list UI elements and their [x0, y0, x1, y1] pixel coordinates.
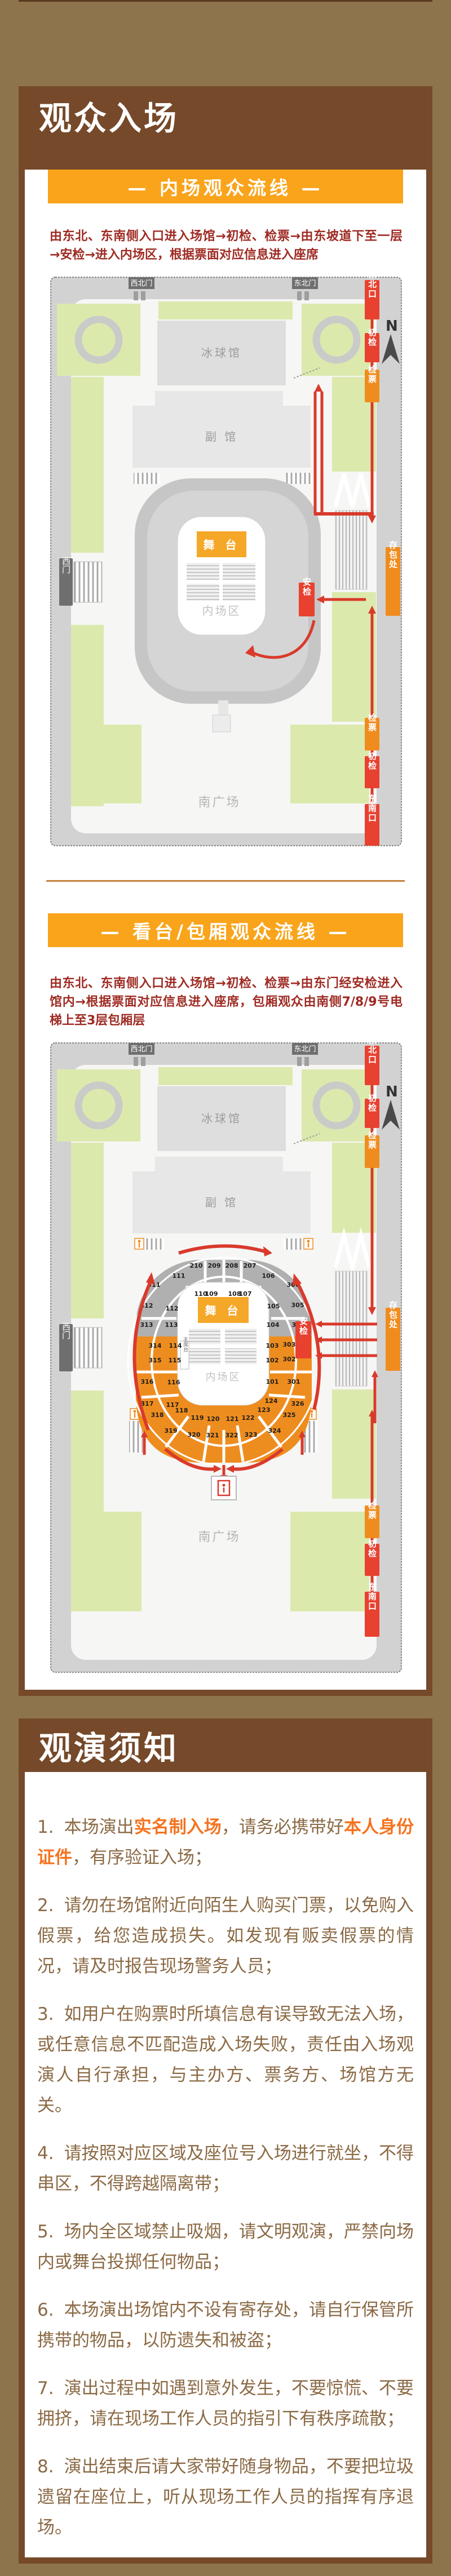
- notice-item-3: 3.如用户在购票时所填信息有误导致无法入场，或任意信息不匹配造成入场失败，责任由…: [37, 1999, 414, 2121]
- first-check-badge: 初检: [367, 751, 377, 771]
- gate-barrier: [134, 1057, 138, 1066]
- seat-section-label: 103: [266, 1342, 279, 1349]
- section-entrance: 观众入场 — 内场观众流线 — 由东北、东南侧入口进入场馆→初检、检票→由东坡道…: [19, 86, 432, 1696]
- west-gate-label: 西门: [61, 1322, 71, 1340]
- north-compass-label: N: [386, 318, 398, 335]
- west-stairs: [74, 1327, 102, 1368]
- seat-section-label: 324: [268, 1427, 281, 1434]
- seat-section-label: 123: [258, 1406, 271, 1414]
- seat-section-label: 303: [283, 1341, 296, 1348]
- notice-number: 1.: [37, 1817, 54, 1837]
- gate-ne-label: 东北门: [294, 1045, 316, 1054]
- notice-item-1: 1.本场演出实名制入场，请务必携带好本人身份证件，有序验证入场；: [37, 1812, 414, 1873]
- west-gate-label: 西门: [61, 557, 71, 574]
- gate-barrier: [304, 1057, 309, 1066]
- gate-barrier: [141, 291, 145, 300]
- seat-section-label: 302: [283, 1356, 296, 1363]
- infield-flow-desc: 由东北、东南侧入口进入场馆→初检、检票→由东坡道下至一层→安检→进入内场区，根据…: [25, 227, 426, 264]
- seat-section-label: 107: [239, 1290, 252, 1298]
- notice-item-4: 4.请按照对应区域及座位号入场进行就坐，不得串区，不得跨越隔离带；: [37, 2138, 414, 2199]
- notice-item-6: 6.本场演出场馆内不设有寄存处，请自行保管所携带的物品，以防遗失和被盗；: [37, 2295, 414, 2356]
- notice-text: ，有序验证入场；: [72, 1847, 212, 1868]
- ice-hall-label: 冰球馆: [201, 1112, 242, 1125]
- seat-section-label: 122: [242, 1414, 255, 1422]
- seat-section-label: 208: [225, 1262, 238, 1269]
- seat-section-label: 313: [140, 1321, 153, 1329]
- notice-text: 场内全区域禁止吸烟，请文明观演，严禁向场内或舞台投掷任何物品；: [37, 2222, 414, 2272]
- ticket-check-badge: 检票: [367, 365, 377, 384]
- seat-section-label: 319: [165, 1427, 178, 1434]
- notice-card: 1.本场演出实名制入场，请务必携带好本人身份证件，有序验证入场； 2.请勿在场馆…: [25, 1772, 426, 2557]
- seat-section-label: 113: [165, 1321, 178, 1329]
- page: 观众入场 — 内场观众流线 — 由东北、东南侧入口进入场馆→初检、检票→由东坡道…: [0, 0, 451, 2576]
- notice-text: 请勿在场馆附近向陌生人购买门票，以免购入假票，给您造成损失。如发现有贩卖假票的情…: [37, 1895, 414, 1977]
- notice-text: 请按照对应区域及座位号入场进行就坐，不得串区，不得跨越隔离带；: [37, 2143, 414, 2194]
- notice-number: 2.: [37, 1895, 54, 1916]
- seat-section-label: 111: [173, 1272, 185, 1280]
- seat-section-label: 316: [141, 1378, 154, 1385]
- ticket-check-badge: 检票: [367, 1500, 377, 1520]
- seat-section-label: 323: [245, 1431, 258, 1438]
- notice-text: 演出过程中如遇到意外发生，不要惊慌、不要拥挤，请在现场工作人员的指引下有秩序疏散…: [37, 2378, 414, 2429]
- seat-section-label: 119: [191, 1414, 204, 1422]
- south-corridor: [218, 700, 228, 716]
- entrance-card: — 内场观众流线 — 由东北、东南侧入口进入场馆→初检、检票→由东坡道下至一层→…: [25, 170, 426, 1690]
- security-check-badge: 安检: [302, 577, 312, 597]
- banner-infield-flow: — 内场观众流线 —: [48, 170, 403, 203]
- map-stand: 冰球馆 副 馆: [50, 1042, 426, 1673]
- stairs-icon: [134, 473, 160, 484]
- ice-hall-label: 冰球馆: [201, 346, 242, 359]
- seat-section-label: 314: [149, 1342, 162, 1349]
- seat-section-label: 121: [226, 1415, 239, 1423]
- aux-hall-label: 副 馆: [205, 1196, 238, 1209]
- seat-section-label: 114: [169, 1342, 182, 1349]
- banner-stand-flow: — 看台/包厢观众流线 —: [48, 913, 403, 947]
- seat-section-label: 209: [208, 1262, 221, 1269]
- notice-highlight: 实名制入场: [134, 1817, 222, 1837]
- stage-label: 舞 台: [204, 538, 240, 552]
- ticket-check-badge: 检票: [367, 1130, 377, 1150]
- notice-title: 观演须知: [19, 1718, 432, 1772]
- notice-number: 7.: [37, 2378, 54, 2399]
- gate-nw-label: 西北门: [130, 279, 152, 288]
- notice-number: 4.: [37, 2143, 54, 2164]
- south-plaza-label: 南广场: [198, 796, 240, 810]
- gate-barrier: [304, 291, 309, 300]
- gate-barrier: [297, 291, 302, 300]
- first-check-badge: 初检: [367, 327, 377, 347]
- notice-text: 演出结束后请大家带好随身物品，不要把垃圾遗留在座位上，听从现场工作人员的指挥有序…: [37, 2457, 414, 2538]
- west-stairs: [74, 562, 102, 602]
- gate-ne-label: 东北门: [294, 279, 316, 288]
- seat-section-label: 305: [291, 1302, 304, 1309]
- stage-label: 舞 台: [205, 1304, 242, 1317]
- notice-item-2: 2.请勿在场馆附近向陌生人购买门票，以免购入假票，给您造成损失。如发现有贩卖假票…: [37, 1890, 414, 1982]
- map-infield-svg: 冰球馆 副 馆 舞 台 内场区: [50, 277, 402, 846]
- aux-hall-label: 副 馆: [205, 430, 238, 443]
- first-check-badge: 初检: [367, 1539, 377, 1558]
- seat-section-label: 101: [266, 1378, 279, 1385]
- seat-section-label: 118: [175, 1407, 188, 1414]
- seat-section-label: 318: [151, 1411, 164, 1419]
- gate-barrier: [141, 1057, 145, 1066]
- seat-section-label: 109: [205, 1290, 218, 1298]
- aux-hall-annex: [155, 1157, 283, 1171]
- notice-number: 5.: [37, 2222, 54, 2242]
- notice-text: ，请务必携带好: [222, 1817, 344, 1837]
- seat-section-label: 105: [267, 1303, 280, 1310]
- notice-text: 本场演出: [64, 1817, 134, 1837]
- aux-hall-annex: [155, 391, 283, 406]
- gate-nw-label: 西北门: [130, 1045, 152, 1054]
- notice-number: 8.: [37, 2457, 54, 2477]
- page-title: 观众入场: [19, 86, 432, 145]
- infield-label: 内场区: [206, 1371, 241, 1383]
- seat-section-label: 207: [244, 1262, 257, 1269]
- security-check-badge: 安检: [298, 1316, 308, 1336]
- seat-section-label: 210: [190, 1262, 203, 1269]
- gate-barrier: [297, 1057, 302, 1066]
- section-divider: [46, 880, 405, 882]
- notice-text: 本场演出场馆内不设有寄存处，请自行保管所携带的物品，以防遗失和被盗；: [37, 2300, 414, 2351]
- first-check-badge: 初检: [367, 1093, 377, 1113]
- notice-item-7: 7.演出过程中如遇到意外发生，不要惊慌、不要拥挤，请在现场工作人员的指引下有秩序…: [37, 2373, 414, 2434]
- seat-section-label: 124: [265, 1397, 278, 1405]
- ne-entrance-badge: 东北口: [367, 1042, 377, 1065]
- notice-number: 6.: [37, 2300, 54, 2320]
- bag-storage-badge: 存包处: [388, 540, 398, 570]
- seat-section-label: 317: [141, 1400, 154, 1407]
- seat-section-label: 102: [266, 1357, 279, 1364]
- top-divider: [19, 0, 432, 2]
- section-notice: 观演须知 1.本场演出实名制入场，请务必携带好本人身份证件，有序验证入场； 2.…: [19, 1718, 432, 2564]
- map-infield: 冰球馆 副 馆 舞 台 内场区: [50, 277, 426, 846]
- infield-label: 内场区: [202, 604, 241, 618]
- seat-section-label: 322: [225, 1432, 238, 1439]
- rostrum-label: 主席台: [182, 1336, 188, 1352]
- ticket-check-badge: 检票: [367, 713, 377, 732]
- notice-number: 3.: [37, 2004, 54, 2024]
- stairs-icon: [286, 473, 312, 484]
- south-plaza-label: 南广场: [198, 1530, 240, 1544]
- queue-lanes: [335, 1271, 367, 1386]
- map-stand-svg: 冰球馆 副 馆: [50, 1042, 402, 1673]
- seat-section-label: 326: [291, 1400, 304, 1407]
- notice-item-5: 5.场内全区域禁止吸烟，请文明观演，严禁向场内或舞台投掷任何物品；: [37, 2217, 414, 2277]
- seat-section-label: 115: [169, 1357, 182, 1364]
- seat-section-label: 106: [262, 1272, 275, 1280]
- seat-section-label: 120: [207, 1415, 220, 1423]
- seat-section-label: 116: [167, 1379, 180, 1386]
- stand-flow-desc: 由东北、东南侧入口进入场馆→初检、检票→由东门经安检进入馆内→根据票面对应信息进…: [25, 974, 426, 1030]
- south-exit: [213, 715, 231, 732]
- se-entrance-badge: 东南口: [367, 1582, 377, 1611]
- north-compass-label: N: [386, 1083, 398, 1100]
- seat-section-label: 112: [166, 1305, 179, 1312]
- seat-section-label: 320: [188, 1431, 201, 1438]
- queue-lanes: [335, 510, 367, 589]
- notice-item-8: 8.演出结束后请大家带好随身物品，不要把垃圾遗留在座位上，听从现场工作人员的指挥…: [37, 2451, 414, 2543]
- seat-section-label: 104: [267, 1321, 280, 1329]
- seat-section-label: 321: [206, 1432, 219, 1439]
- notice-text: 如用户在购票时所填信息有误导致无法入场，或任意信息不匹配造成入场失败，责任由入场…: [37, 2004, 414, 2116]
- se-entrance-badge: 东南口: [367, 794, 377, 823]
- ne-entrance-badge: 东北口: [367, 277, 377, 299]
- seat-section-label: 301: [288, 1378, 300, 1385]
- seat-section-label: 315: [149, 1357, 162, 1364]
- gate-barrier: [134, 291, 138, 300]
- seat-section-label: 325: [283, 1411, 296, 1419]
- bag-storage-badge: 存包处: [388, 1300, 398, 1330]
